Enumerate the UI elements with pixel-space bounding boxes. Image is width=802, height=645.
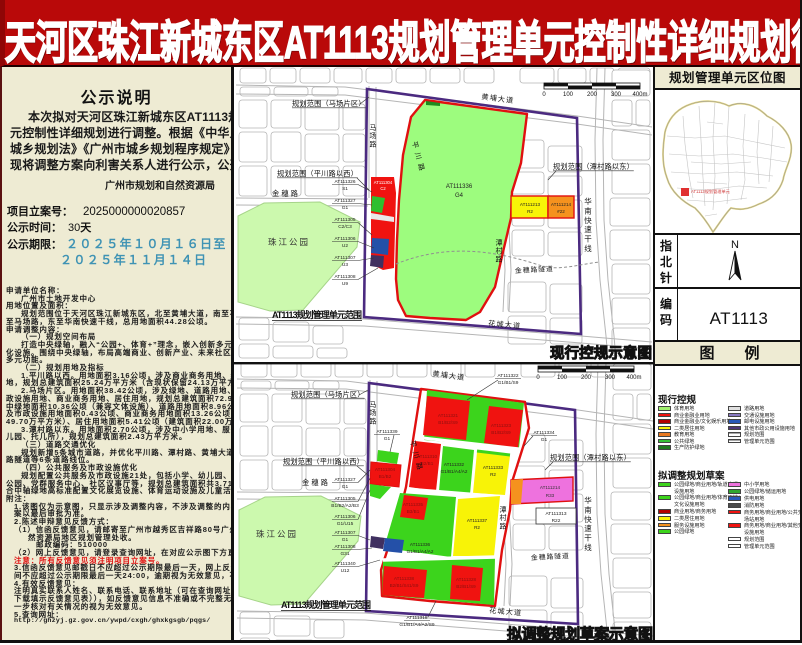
svg-text:规划范围（潭村路以东）: 规划范围（潭村路以东）: [553, 162, 634, 171]
svg-text:AT111304: AT111304: [374, 180, 393, 185]
svg-text:AT111214: AT111214: [540, 485, 561, 490]
svg-text:路: 路: [370, 416, 377, 425]
svg-text:潭: 潭: [500, 505, 507, 514]
svg-text:B1/B2/S9: B1/B2/S9: [491, 430, 511, 435]
svg-text:300: 300: [605, 375, 616, 381]
svg-text:AT111318: AT111318: [406, 615, 427, 621]
svg-text:R2: R2: [474, 525, 480, 530]
svg-text:G1: G1: [384, 436, 391, 442]
svg-text:200: 200: [581, 375, 592, 381]
svg-text:#22: #22: [557, 209, 565, 214]
svg-text:B2/B1/S9: B2/B1/S9: [456, 584, 476, 589]
svg-text:华: 华: [584, 196, 592, 206]
svg-text:AT111307: AT111307: [334, 530, 355, 536]
svg-text:南: 南: [584, 205, 592, 215]
svg-text:AT111327: AT111327: [334, 198, 355, 204]
svg-text:AT111306: AT111306: [334, 236, 355, 242]
svg-text:U12: U12: [341, 568, 350, 574]
svg-text:规划范围（平川路以西）: 规划范围（平川路以西）: [277, 169, 358, 178]
svg-text:G1/B1/A4/A2: G1/B1/A4/A2: [441, 469, 468, 474]
svg-text:金穗路: 金穗路: [272, 189, 298, 198]
svg-text:AT111313: AT111313: [545, 511, 566, 517]
svg-text:200: 200: [587, 92, 598, 98]
svg-text:马: 马: [370, 124, 377, 132]
svg-text:AT111213: AT111213: [520, 202, 541, 207]
svg-text:规划范围（马场片区）: 规划范围（马场片区）: [291, 390, 364, 399]
svg-text:速: 速: [584, 225, 592, 234]
svg-text:0: 0: [542, 92, 546, 98]
svg-text:G1: G1: [342, 205, 349, 211]
svg-text:AT111337: AT111337: [467, 518, 488, 523]
svg-text:AT111326: AT111326: [334, 179, 355, 185]
svg-text:快: 快: [584, 514, 592, 524]
svg-text:AT111339: AT111339: [376, 429, 397, 435]
svg-text:AT111307: AT111307: [334, 255, 355, 261]
svg-text:金穗路: 金穗路: [302, 478, 328, 487]
svg-text:规划范围（潭村路以东）: 规划范围（潭村路以东）: [550, 453, 631, 462]
svg-text:潭: 潭: [496, 238, 503, 247]
svg-text:AT111321: AT111321: [438, 413, 459, 418]
svg-text:G31: G31: [340, 551, 349, 557]
svg-text:现行控规示意图: 现行控规示意图: [550, 344, 652, 362]
svg-text:干: 干: [584, 235, 592, 244]
svg-text:400m: 400m: [632, 92, 647, 98]
svg-text:线: 线: [584, 542, 592, 552]
svg-text:AT111323: AT111323: [491, 423, 512, 428]
svg-text:AT111333: AT111333: [483, 465, 504, 470]
svg-text:AT1113规划管理单元范围: AT1113规划管理单元范围: [272, 309, 362, 320]
svg-text:金穗路隧道: 金穗路隧道: [515, 264, 554, 275]
svg-text:路: 路: [370, 139, 377, 148]
svg-text:G1/B1/S9: G1/B1/S9: [498, 380, 519, 386]
svg-text:U3: U3: [342, 262, 348, 268]
svg-text:金穗路隧道: 金穗路隧道: [531, 551, 570, 562]
svg-text:AT111335: AT111335: [403, 502, 424, 507]
svg-text:B1/B2: B1/B2: [379, 474, 392, 479]
svg-text:R22: R22: [552, 518, 561, 524]
svg-text:100: 100: [557, 375, 568, 381]
svg-text:AT111328: AT111328: [456, 577, 477, 582]
svg-text:100: 100: [563, 92, 574, 98]
svg-text:AT111214: AT111214: [551, 202, 572, 207]
svg-text:规划范围（马场片区）: 规划范围（马场片区）: [292, 99, 365, 108]
svg-text:快: 快: [584, 215, 592, 225]
svg-text:G1/B1/A4/A2/S9: G1/B1/A4/A2/S9: [399, 622, 435, 628]
svg-text:R2: R2: [527, 209, 533, 214]
svg-text:AT111305: AT111305: [334, 496, 355, 502]
svg-text:场: 场: [370, 408, 377, 417]
svg-text:AT1113规划管理单元: AT1113规划管理单元: [691, 188, 730, 195]
svg-text:AT111305: AT111305: [334, 217, 355, 223]
svg-text:S1: S1: [342, 186, 348, 192]
svg-text:AT111306: AT111306: [334, 514, 355, 520]
svg-text:黄埔大道: 黄埔大道: [481, 92, 514, 105]
svg-text:B1/B2/A2/B3: B1/B2/A2/B3: [331, 503, 359, 509]
svg-text:速: 速: [584, 524, 592, 533]
svg-text:AT111336: AT111336: [446, 184, 473, 190]
svg-text:线: 线: [584, 243, 592, 253]
svg-text:AT111304: AT111304: [375, 467, 396, 472]
svg-text:AT111308: AT111308: [334, 544, 355, 550]
svg-text:马: 马: [370, 401, 377, 409]
svg-text:规划范围（平川路以西）: 规划范围（平川路以西）: [283, 457, 364, 466]
svg-text:C2/C3: C2/C3: [338, 224, 352, 230]
svg-text:干: 干: [584, 534, 592, 543]
svg-text:B3/B1: B3/B1: [407, 509, 420, 514]
svg-text:300: 300: [611, 92, 622, 98]
svg-text:AT111332: AT111332: [444, 462, 465, 467]
svg-text:B1/B2/S9: B1/B2/S9: [438, 420, 458, 425]
svg-text:R2: R2: [490, 472, 496, 477]
svg-text:B2/B1/S41/S9: B2/B1/S41/S9: [390, 583, 419, 588]
svg-text:珠江公园: 珠江公园: [256, 529, 296, 539]
svg-text:场: 场: [370, 131, 377, 140]
svg-text:村: 村: [496, 246, 503, 255]
svg-text:R33: R33: [546, 493, 555, 498]
svg-text:AT111322: AT111322: [497, 373, 518, 379]
svg-text:南: 南: [584, 504, 592, 514]
svg-text:华: 华: [584, 495, 592, 505]
svg-text:C2: C2: [380, 186, 386, 191]
svg-text:AT111338: AT111338: [394, 576, 415, 581]
svg-text:G1: G1: [342, 537, 349, 543]
svg-text:400m: 400m: [626, 375, 641, 381]
svg-text:G1: G1: [541, 437, 548, 443]
svg-text:AT1113规划管理单元范围: AT1113规划管理单元范围: [281, 599, 371, 610]
svg-text:G4: G4: [455, 193, 464, 199]
svg-text:路: 路: [496, 254, 503, 263]
svg-text:G1: G1: [342, 484, 349, 490]
svg-text:AT111327: AT111327: [334, 477, 355, 483]
svg-text:AT111308: AT111308: [334, 274, 355, 280]
svg-text:AT111336: AT111336: [410, 542, 431, 547]
svg-text:G1/B1/A4/A2: G1/B1/A4/A2: [407, 549, 434, 554]
svg-text:拟调整规划草案示意图: 拟调整规划草案示意图: [507, 625, 653, 640]
svg-text:村: 村: [500, 513, 507, 522]
svg-text:G1/U15: G1/U15: [337, 521, 354, 527]
svg-text:路: 路: [500, 521, 507, 530]
svg-text:珠江公园: 珠江公园: [268, 237, 308, 247]
svg-text:N: N: [731, 239, 739, 251]
svg-text:U2: U2: [342, 243, 348, 249]
svg-text:花城大道: 花城大道: [489, 606, 522, 618]
svg-text:AT111340: AT111340: [334, 561, 355, 567]
svg-text:AT111334: AT111334: [533, 430, 554, 436]
svg-text:U9: U9: [342, 281, 348, 287]
